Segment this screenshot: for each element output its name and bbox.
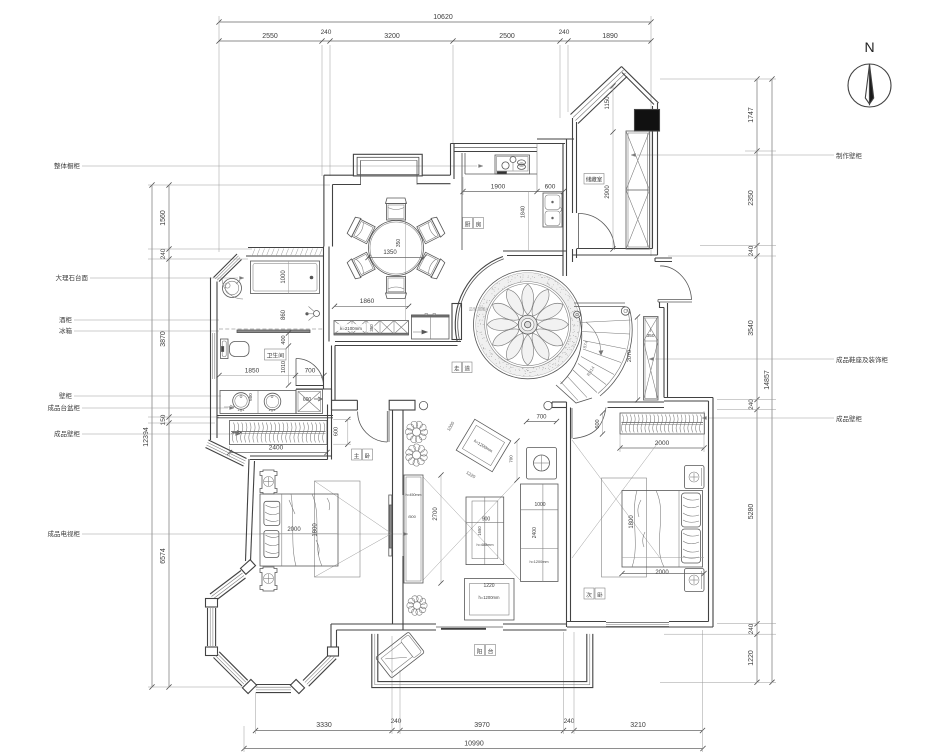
svg-text:1800: 1800 xyxy=(313,523,319,537)
svg-text:240: 240 xyxy=(748,623,755,634)
svg-text:1560: 1560 xyxy=(160,210,167,226)
svg-text:成品鞋座及装饰柜: 成品鞋座及装饰柜 xyxy=(836,355,889,364)
svg-text:3330: 3330 xyxy=(316,722,332,729)
svg-text:h=1200mm: h=1200mm xyxy=(529,560,548,564)
svg-text:12394: 12394 xyxy=(143,427,150,447)
svg-text:厨: 厨 xyxy=(465,221,471,228)
svg-text:冰箱: 冰箱 xyxy=(59,326,73,335)
svg-text:N: N xyxy=(864,39,874,55)
svg-text:240: 240 xyxy=(564,718,575,725)
svg-text:10990: 10990 xyxy=(464,741,484,748)
svg-text:1840: 1840 xyxy=(521,206,527,218)
svg-text:成品台盆柜: 成品台盆柜 xyxy=(48,403,81,412)
svg-text:2900: 2900 xyxy=(605,185,611,199)
svg-text:240: 240 xyxy=(748,245,755,256)
svg-text:储藏室: 储藏室 xyxy=(586,176,603,184)
svg-text:700: 700 xyxy=(509,455,514,463)
svg-text:1860: 1860 xyxy=(360,298,375,305)
svg-text:主: 主 xyxy=(354,452,360,460)
svg-text:阳: 阳 xyxy=(477,647,483,655)
svg-text:240: 240 xyxy=(748,399,755,410)
svg-text:道: 道 xyxy=(465,365,471,373)
svg-text:1890: 1890 xyxy=(602,33,618,40)
svg-text:3210: 3210 xyxy=(630,722,646,729)
svg-text:3540: 3540 xyxy=(748,320,755,336)
svg-text:1010: 1010 xyxy=(281,361,287,373)
svg-text:+o+: +o+ xyxy=(238,408,246,413)
svg-text:350: 350 xyxy=(646,333,654,339)
svg-text:150: 150 xyxy=(160,414,167,425)
svg-text:14857: 14857 xyxy=(764,370,771,390)
svg-text:1747: 1747 xyxy=(748,107,755,123)
svg-text:1220: 1220 xyxy=(483,583,494,589)
svg-text:600: 600 xyxy=(334,427,340,436)
svg-text:h=1200mm: h=1200mm xyxy=(478,595,500,600)
svg-text:350: 350 xyxy=(396,239,402,248)
svg-text:350: 350 xyxy=(369,324,374,332)
svg-text:600: 600 xyxy=(303,397,312,403)
svg-text:走: 走 xyxy=(454,365,460,373)
svg-text:3200: 3200 xyxy=(384,33,400,40)
svg-text:酒柜: 酒柜 xyxy=(59,315,73,324)
svg-text:10620: 10620 xyxy=(433,14,453,21)
svg-text:860: 860 xyxy=(281,309,287,320)
svg-text:2350: 2350 xyxy=(748,190,755,206)
svg-text:1000: 1000 xyxy=(281,270,287,284)
svg-text:卧: 卧 xyxy=(597,591,603,599)
svg-text:k=2100mm: k=2100mm xyxy=(340,326,362,331)
svg-text:1900: 1900 xyxy=(491,184,506,191)
svg-text:/500: /500 xyxy=(408,514,417,519)
svg-text:卧: 卧 xyxy=(365,452,371,460)
svg-text:1000: 1000 xyxy=(534,502,545,508)
svg-text:700: 700 xyxy=(536,415,547,421)
svg-text:600: 600 xyxy=(248,393,253,401)
svg-text:大理石台面: 大理石台面 xyxy=(56,273,89,282)
svg-text:2070: 2070 xyxy=(627,350,633,362)
svg-text:400: 400 xyxy=(281,335,287,344)
svg-text:2000: 2000 xyxy=(655,440,670,447)
svg-text:1800: 1800 xyxy=(629,515,635,529)
svg-text:1850: 1850 xyxy=(245,368,260,375)
svg-text:1220: 1220 xyxy=(748,650,755,666)
svg-text:壁柜: 壁柜 xyxy=(59,391,73,400)
svg-text:2550: 2550 xyxy=(262,33,278,40)
svg-text:700: 700 xyxy=(305,368,316,375)
svg-text:5280: 5280 xyxy=(748,504,755,520)
svg-text:1650: 1650 xyxy=(477,526,482,536)
svg-text:2400: 2400 xyxy=(269,445,284,452)
svg-text:制作壁柜: 制作壁柜 xyxy=(836,151,863,160)
svg-text:次: 次 xyxy=(586,591,592,599)
svg-text:3970: 3970 xyxy=(474,722,490,729)
svg-text:240: 240 xyxy=(321,29,332,36)
svg-text:240: 240 xyxy=(160,248,167,259)
svg-text:2000: 2000 xyxy=(287,527,301,533)
svg-text:600: 600 xyxy=(545,184,556,191)
svg-text:成品电视柜: 成品电视柜 xyxy=(48,529,81,538)
svg-text:2500: 2500 xyxy=(499,33,515,40)
svg-text:+o+: +o+ xyxy=(269,408,277,413)
svg-text:台: 台 xyxy=(488,647,494,655)
svg-text:成品壁柜: 成品壁柜 xyxy=(54,429,81,438)
svg-text:900: 900 xyxy=(482,517,491,523)
svg-text:6574: 6574 xyxy=(160,548,167,564)
svg-text:1150: 1150 xyxy=(605,96,611,110)
svg-text:240: 240 xyxy=(559,29,570,36)
svg-text:600: 600 xyxy=(595,419,601,428)
svg-text:房: 房 xyxy=(476,220,482,228)
svg-text:1350: 1350 xyxy=(383,250,397,256)
svg-text:2400: 2400 xyxy=(532,527,538,538)
svg-text:3870: 3870 xyxy=(160,331,167,347)
svg-text:h=450mm: h=450mm xyxy=(405,493,421,497)
svg-text:卫生间: 卫生间 xyxy=(267,352,285,360)
svg-text:整体橱柜: 整体橱柜 xyxy=(54,161,81,170)
svg-text:2000: 2000 xyxy=(655,570,669,576)
svg-text:成品壁柜: 成品壁柜 xyxy=(836,414,863,423)
svg-text:2700: 2700 xyxy=(433,507,439,521)
svg-text:h=488mm: h=488mm xyxy=(477,543,494,547)
svg-text:造型见图A: 造型见图A xyxy=(469,306,489,313)
